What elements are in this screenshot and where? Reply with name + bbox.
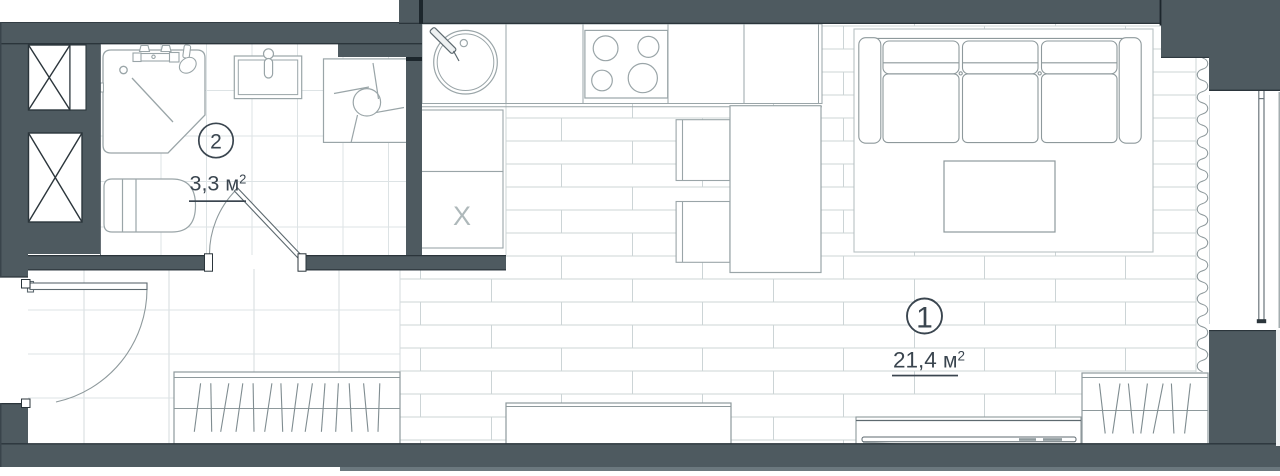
svg-text:21,4 м2: 21,4 м2 bbox=[893, 348, 965, 373]
svg-text:3,3 м2: 3,3 м2 bbox=[190, 172, 247, 196]
svg-text:X: X bbox=[453, 201, 471, 231]
svg-text:2: 2 bbox=[210, 131, 222, 154]
svg-text:1: 1 bbox=[916, 301, 933, 334]
